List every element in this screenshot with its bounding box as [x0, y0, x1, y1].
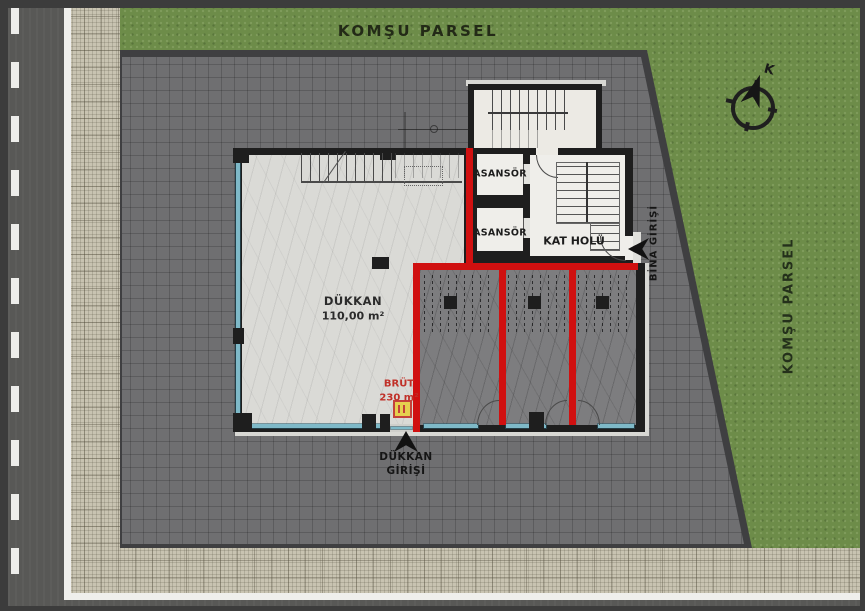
utility-marker-glyph [398, 405, 400, 413]
shop-door-glass [391, 427, 412, 429]
red-wall-units-mid1 [499, 268, 506, 425]
shop-area-label: 110,00 m² [322, 310, 385, 323]
canopy-line-vertical [404, 112, 406, 148]
unit-1-stair [424, 272, 496, 332]
stair-block-rail [488, 112, 568, 114]
shop-stair-treads [301, 153, 393, 181]
hall-stair-rail [586, 162, 588, 222]
compass-tick-s [744, 122, 750, 132]
stair-block-treads-lower [492, 130, 542, 148]
door-post [380, 414, 390, 432]
canopy-node [430, 125, 438, 133]
unit-bottom-post [529, 412, 544, 432]
neighbor-parcel-label-top: KOMŞU PARSEL [338, 22, 498, 40]
building-bottom-sill [235, 432, 649, 436]
frame-left [0, 0, 8, 611]
unit-1-landing-post [444, 296, 457, 309]
column-bottom-left [233, 413, 252, 432]
building-entrance-label: BİNA GİRİŞİ [649, 205, 660, 281]
shop-entrance-label-line2: GİRİŞİ [387, 465, 426, 477]
hall-top-door-gap [536, 148, 558, 155]
storefront-glass-bottom [249, 424, 362, 428]
red-wall-units-mid2 [569, 268, 576, 425]
neighbor-parcel-label-right: KOMŞU PARSEL [782, 238, 797, 375]
units-right-sill [645, 263, 649, 436]
utility-marker-glyph2 [403, 405, 405, 413]
gross-label: BRÜT [384, 379, 414, 390]
unit-2-landing-post [528, 296, 541, 309]
red-wall-shop-divider [466, 148, 473, 263]
unit-1-glass [424, 424, 478, 428]
red-wall-units-left [413, 263, 420, 432]
unit-3-landing-post [596, 296, 609, 309]
gross-area-label: 230 m² [379, 393, 418, 404]
unit-3-glass [598, 424, 634, 428]
stair-block-treads [492, 90, 568, 130]
shop-entrance-label-line1: DÜKKAN [379, 451, 432, 463]
column-mid-left [233, 328, 244, 344]
column-top-left [233, 148, 249, 163]
column-bottom-mid [362, 414, 376, 432]
site-plan: K KOMŞU PARSEL KOMŞU PARSEL ASANSÖR ASAN… [0, 0, 865, 611]
floor-hall-label: KAT HOLÜ [543, 235, 605, 248]
hall-stair-treads [556, 162, 620, 224]
shop-stair-landing [404, 166, 443, 186]
curb-bottom [64, 593, 860, 600]
frame-top [0, 0, 865, 8]
storefront-glass-left [236, 162, 240, 414]
frame-right [860, 0, 865, 611]
red-wall-units-top [413, 263, 638, 270]
elevator-1-label: ASANSÖR [473, 169, 527, 180]
elevator-2-label: ASANSÖR [473, 228, 527, 239]
curb-left [64, 8, 71, 594]
shop-name-label: DÜKKAN [324, 294, 382, 308]
frame-bottom [0, 606, 865, 611]
column-interior [372, 257, 389, 269]
lane-marking-dashes [11, 8, 19, 600]
